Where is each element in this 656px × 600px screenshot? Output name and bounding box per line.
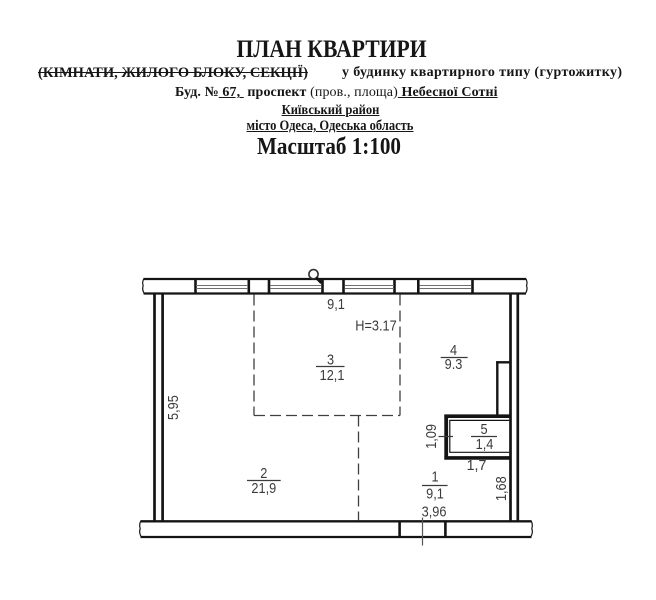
svg-text:1,4: 1,4	[476, 435, 494, 452]
svg-text:1: 1	[431, 467, 438, 484]
svg-text:9.3: 9.3	[445, 355, 463, 372]
svg-text:H=3.17: H=3.17	[355, 316, 397, 333]
svg-text:1,68: 1,68	[492, 476, 509, 501]
svg-text:9,1: 9,1	[327, 295, 345, 312]
svg-text:3,96: 3,96	[422, 503, 447, 520]
svg-text:12,1: 12,1	[320, 366, 345, 383]
svg-text:9,1: 9,1	[426, 485, 444, 502]
svg-text:1,7: 1,7	[467, 458, 487, 474]
svg-text:1,09: 1,09	[422, 424, 439, 449]
svg-text:21,9: 21,9	[251, 479, 276, 496]
svg-text:5,95: 5,95	[164, 395, 181, 420]
